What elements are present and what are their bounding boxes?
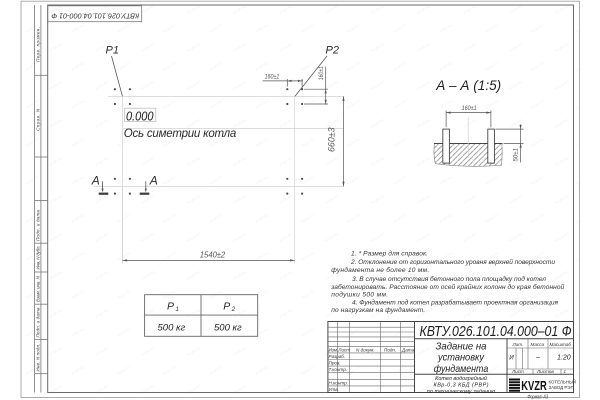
svg-text:1:20: 1:20 xyxy=(557,355,571,362)
svg-text:фундамента: фундамента xyxy=(434,363,489,375)
svg-text:Дата: Дата xyxy=(401,348,415,353)
svg-text:Формат А3: Формат А3 xyxy=(528,394,549,400)
svg-text:Взам. инв. N: Взам. инв. N xyxy=(36,275,41,302)
svg-text:установку: установку xyxy=(437,352,485,364)
svg-text:А: А xyxy=(91,173,100,187)
svg-text:Подп. и дата: Подп. и дата xyxy=(36,210,41,241)
svg-text:4. Фундамент под котел разраба: 4. Фундамент под котел разрабатывает про… xyxy=(352,299,558,307)
svg-text:А – А (1:5): А – А (1:5) xyxy=(435,77,501,93)
svg-text:Справ. N: Справ. N xyxy=(36,108,41,131)
svg-text:160±1: 160±1 xyxy=(318,66,325,80)
svg-text:500 кг: 500 кг xyxy=(214,323,242,334)
svg-text:500 кг: 500 кг xyxy=(158,323,186,334)
svg-text:1: 1 xyxy=(564,369,567,374)
svg-text:Н.контр.: Н.контр. xyxy=(329,381,348,386)
svg-text:Подп.: Подп. xyxy=(384,348,396,353)
svg-text:фундамента не более 10 мм.: фундамента не более 10 мм. xyxy=(331,266,429,274)
svg-text:3. В случае отсутствия бетонно: 3. В случае отсутствия бетонного пола пл… xyxy=(352,275,546,283)
svg-text:по техническому заданию: по техническому заданию xyxy=(427,389,495,395)
svg-text:Масштаб: Масштаб xyxy=(550,342,572,347)
svg-text:160±1: 160±1 xyxy=(265,73,280,80)
svg-text:1540±2: 1540±2 xyxy=(200,249,226,259)
svg-text:забетонировать. Расстояние от: забетонировать. Расстояние от осей крайн… xyxy=(330,283,564,291)
svg-text:Перв. примен.: Перв. примен. xyxy=(36,27,41,62)
svg-text:КВТУ.026.101.04.000–01 Ф: КВТУ.026.101.04.000–01 Ф xyxy=(420,323,572,340)
svg-text:Лит.: Лит. xyxy=(512,342,524,347)
svg-text:P: P xyxy=(167,301,174,313)
svg-text:660±3: 660±3 xyxy=(326,128,336,153)
svg-text:50±1: 50±1 xyxy=(512,148,519,162)
svg-text:P1: P1 xyxy=(106,45,119,57)
svg-text:Подп. и дата: Подп. и дата xyxy=(36,307,41,337)
svg-text:Котел водогрейный: Котел водогрейный xyxy=(435,375,487,382)
svg-text:1. * Размер для справок.: 1. * Размер для справок. xyxy=(351,250,428,258)
svg-text:А: А xyxy=(149,173,158,187)
svg-text:Утв.: Утв. xyxy=(329,387,339,392)
svg-text:Лист: Лист xyxy=(511,369,524,374)
svg-text:2. Отклонение от горизонтально: 2. Отклонение от горизонтального уровня … xyxy=(350,258,555,266)
svg-text:Инв. N подл.: Инв. N подл. xyxy=(36,344,41,372)
svg-text:N докум.: N докум. xyxy=(356,348,375,353)
svg-text:Изм.Лист: Изм.Лист xyxy=(329,348,351,353)
svg-text:0.000: 0.000 xyxy=(126,108,154,123)
svg-text:Ось симетрии котла: Ось симетрии котла xyxy=(124,128,237,140)
svg-text:KVZR: KVZR xyxy=(521,378,547,393)
svg-text:ЗАВОД РЭП: ЗАВОД РЭП xyxy=(549,385,574,390)
svg-text:КВр-0,3 КБД (РВР): КВр-0,3 КБД (РВР) xyxy=(434,382,489,388)
svg-text:–: – xyxy=(535,354,540,361)
svg-text:Т.контр.: Т.контр. xyxy=(329,367,348,372)
svg-text:по нагрузкам на фундамент.: по нагрузкам на фундамент. xyxy=(331,306,425,314)
svg-text:Масса: Масса xyxy=(531,342,545,347)
svg-text:P: P xyxy=(223,301,230,313)
svg-text:КОТЕЛЬНЫЙ: КОТЕЛЬНЫЙ xyxy=(549,380,577,385)
svg-text:Задание на: Задание на xyxy=(436,341,487,353)
svg-text:И: И xyxy=(509,354,514,361)
svg-text:1: 1 xyxy=(176,307,179,313)
svg-text:160±1: 160±1 xyxy=(462,105,477,112)
svg-text:КВТУ.026.101.04.000-01 Ф: КВТУ.026.101.04.000-01 Ф xyxy=(51,12,139,21)
svg-text:Разраб.: Разраб. xyxy=(329,354,346,359)
svg-text:2: 2 xyxy=(231,307,236,313)
svg-text:Листов: Листов xyxy=(536,369,554,374)
svg-text:Инв. N дубл.: Инв. N дубл. xyxy=(36,246,41,270)
svg-text:подушки 500 мм.: подушки 500 мм. xyxy=(331,290,388,298)
svg-text:Пров.: Пров. xyxy=(329,361,341,366)
svg-text:P2: P2 xyxy=(326,45,339,57)
